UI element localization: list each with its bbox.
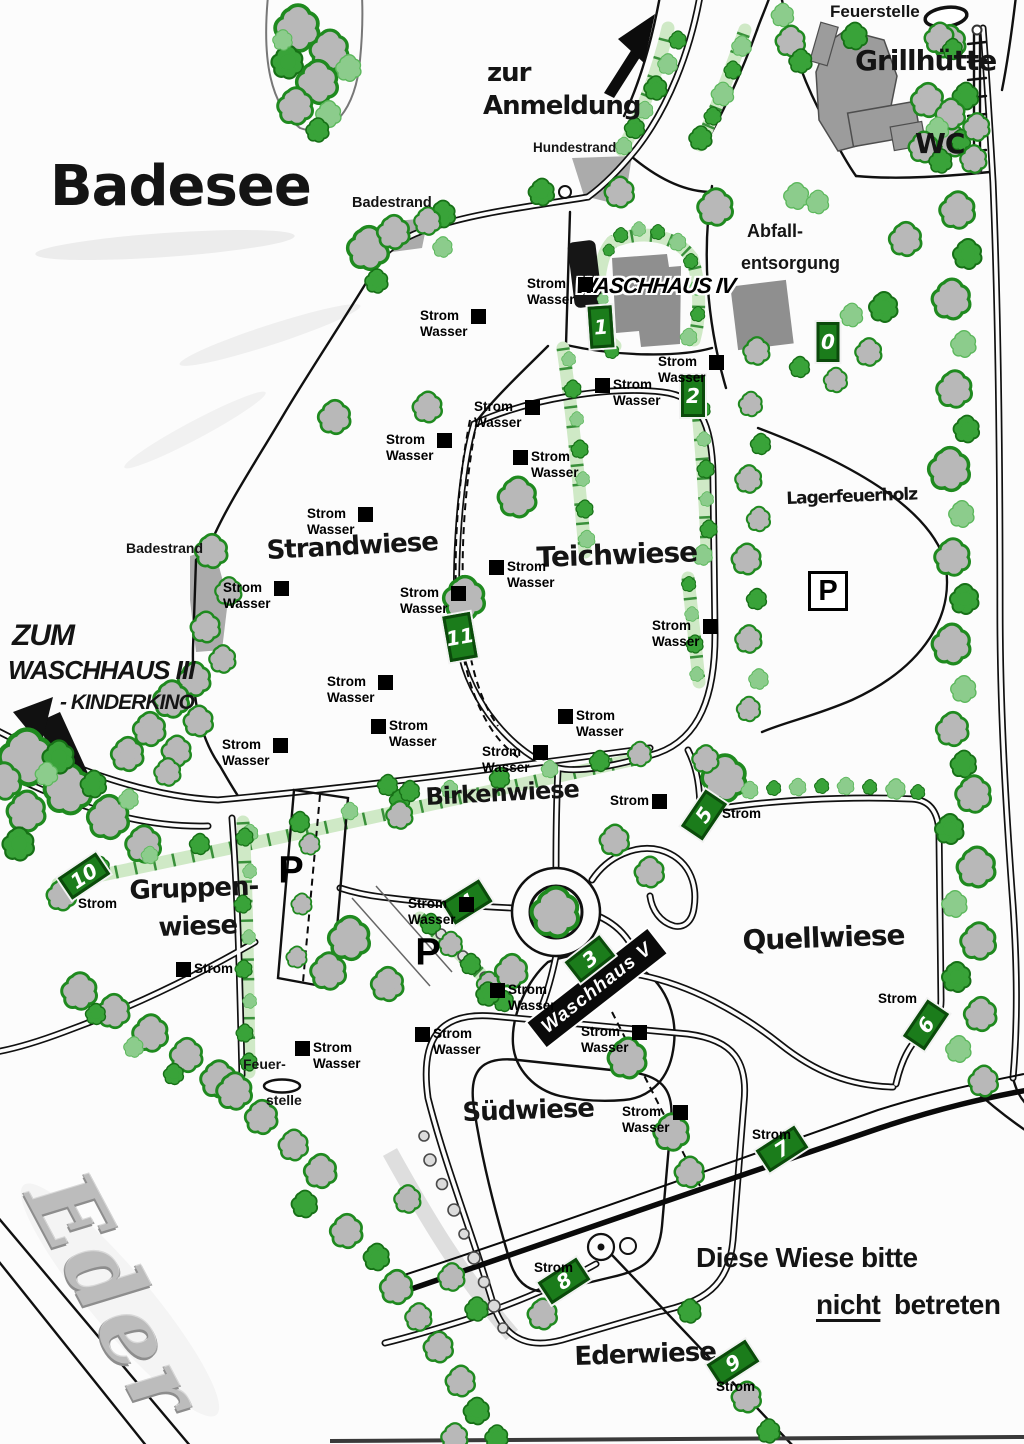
tree-icon [330, 918, 367, 957]
tree-icon [247, 1102, 276, 1133]
tree-icon [733, 1383, 760, 1411]
tree-icon [197, 536, 226, 567]
tree-icon [758, 1420, 779, 1442]
tree-icon [970, 1067, 997, 1095]
tree-icon [237, 1025, 253, 1042]
hundestrand-point [559, 186, 571, 198]
tree-icon [679, 1300, 700, 1322]
tree-icon [767, 781, 780, 795]
tree-icon [241, 1054, 257, 1071]
tree-icon [600, 322, 613, 336]
tree-icon [447, 1367, 474, 1395]
tree-icon [886, 779, 905, 799]
tree-icon [135, 714, 164, 745]
tree-icon [603, 244, 614, 255]
tree-icon [934, 626, 968, 662]
tree-icon [863, 780, 876, 794]
tree-icon [342, 803, 358, 820]
tree-icon [749, 669, 768, 689]
tree-icon [486, 1426, 507, 1444]
tree-icon [124, 1037, 143, 1057]
tree-icon [636, 858, 663, 886]
tree-icon [442, 1424, 466, 1444]
tree-icon [235, 896, 251, 913]
tree-icon [190, 834, 209, 854]
tree-icon [466, 1298, 487, 1320]
tree-icon [601, 826, 628, 854]
tree-icon [959, 849, 993, 885]
tree-icon [572, 441, 588, 458]
tree-icon [670, 32, 686, 49]
tree-icon [856, 339, 880, 364]
tree-icon [414, 393, 441, 421]
building-waschhaus-4 [612, 254, 681, 347]
tree-icon [192, 613, 219, 641]
tree-icon [790, 50, 811, 72]
tree-icon [951, 751, 975, 776]
tree-icon [590, 751, 609, 771]
tree-icon [625, 118, 644, 138]
tree-icon [736, 466, 760, 491]
tree-icon [748, 508, 769, 530]
tree-icon [300, 834, 319, 854]
tree-icon [690, 127, 711, 149]
tree-icon [691, 307, 704, 321]
tree-icon [687, 636, 703, 653]
tree-icon [942, 891, 966, 916]
tree-icon [279, 89, 311, 123]
tree-icon [565, 381, 581, 398]
tree-icon [307, 119, 328, 141]
tree-icon [738, 698, 759, 720]
tree-icon [155, 682, 187, 716]
tree-icon [445, 578, 482, 617]
tree-icon [292, 894, 311, 914]
tree-icon [332, 1216, 361, 1247]
tree-icon [693, 746, 717, 771]
tree-icon [951, 331, 975, 356]
tree-icon [838, 778, 854, 795]
tree-icon [629, 743, 650, 765]
tree-icon [676, 1158, 703, 1186]
tree-icon [616, 138, 632, 155]
tree-icon [694, 401, 710, 418]
tree-icon [218, 1074, 250, 1108]
tree-icon [185, 707, 212, 735]
tree-icon [632, 222, 645, 236]
tree-icon [236, 961, 252, 978]
tree-icon [425, 1333, 452, 1361]
tree-icon [442, 781, 458, 798]
tree-icon [395, 1186, 419, 1211]
tree-icon [379, 217, 408, 248]
tree-icon [772, 4, 793, 26]
tree-icon [366, 270, 387, 292]
tree-icon [4, 829, 33, 860]
tree-icon [951, 676, 975, 701]
tree-icon [936, 815, 963, 843]
tree-icon [698, 461, 714, 478]
tree-icon [645, 77, 666, 99]
tree-icon [164, 1064, 183, 1084]
tree-icon [790, 357, 809, 377]
tree-icon [306, 1156, 335, 1187]
tree-icon [701, 521, 717, 538]
tree-icon [943, 39, 962, 59]
tree-icon [0, 764, 19, 798]
tree-icon [651, 225, 664, 239]
tree-icon [373, 969, 402, 1000]
tree-icon [113, 739, 142, 770]
tree-icon [216, 578, 240, 603]
feuerstelle-oval-bottom [264, 1080, 300, 1093]
tree-icon [421, 914, 440, 934]
tree-icon [378, 775, 397, 795]
tree-icon [891, 224, 920, 255]
tree-icon [740, 393, 761, 415]
tree-icon [48, 881, 75, 909]
tree-icon [655, 1115, 687, 1149]
tree-icon [119, 789, 138, 809]
tree-icon [320, 402, 349, 433]
tree-icon [699, 190, 731, 224]
tree-icon [439, 1264, 463, 1289]
tree-icon [736, 626, 760, 651]
tree-icon [790, 779, 806, 796]
tree-icon [870, 293, 897, 321]
tree-icon [440, 933, 461, 955]
tree-icon [964, 114, 988, 139]
tree-icon [841, 304, 862, 326]
tree-icon [934, 281, 968, 317]
tree-icon [9, 793, 43, 829]
tree-icon [951, 585, 978, 613]
tree-icon [534, 890, 576, 935]
tree-icon [941, 193, 973, 227]
tree-icon [946, 1036, 970, 1061]
tree-icon [290, 812, 309, 832]
tree-icon [930, 150, 951, 172]
tree-icon [86, 1004, 105, 1024]
tree-icon [529, 179, 553, 204]
tree-icon [400, 781, 419, 801]
map-graphics: .ro{fill:none;stroke:#101010;stroke-widt… [0, 0, 1024, 1444]
campsite-map: .ro{fill:none;stroke:#101010;stroke-widt… [0, 0, 1024, 1444]
tree-icon [961, 146, 985, 171]
tree-icon [712, 83, 733, 105]
tree-icon [382, 1272, 411, 1303]
tree-icon [911, 785, 924, 799]
tree-icon [500, 479, 534, 515]
tree-icon [497, 956, 526, 987]
tree-icon [614, 228, 627, 242]
tree-icon [825, 369, 846, 391]
tree-icon [610, 1040, 644, 1076]
tree-icon [210, 646, 234, 671]
tree-icon [90, 857, 109, 877]
tree-icon [464, 1398, 488, 1423]
tree-icon [725, 62, 741, 79]
tree-icon [733, 545, 760, 573]
tree-icon [477, 983, 498, 1005]
tree-icon [807, 191, 828, 213]
tree-icon [415, 208, 439, 233]
tree-icon [954, 416, 978, 441]
tree-icon [312, 954, 344, 988]
tree-icon [815, 779, 828, 793]
tree-icon [957, 777, 989, 811]
tree-icon [943, 963, 970, 991]
tree-icon [292, 1191, 316, 1216]
tree-icon [744, 338, 768, 363]
tree-icon [693, 545, 712, 565]
tree-icon [606, 178, 633, 206]
tree-icon [577, 501, 593, 518]
tree-icon [962, 924, 994, 958]
tree-icon [682, 577, 695, 591]
tree-icon [605, 344, 618, 358]
tree-icon [705, 108, 721, 125]
tree-icon [461, 954, 480, 974]
tree-icon [684, 254, 697, 268]
tree-icon [784, 183, 808, 208]
tree-icon [63, 974, 95, 1008]
tree-icon [966, 999, 995, 1030]
tree-icon [747, 589, 766, 609]
tree-icon [364, 1244, 388, 1269]
tree-icon [433, 237, 452, 257]
tree-icon [842, 23, 866, 48]
tree-icon [387, 802, 411, 827]
tree-icon [938, 714, 967, 745]
tree-icon [237, 829, 253, 846]
tree-icon [681, 329, 697, 346]
tree-icon [930, 449, 967, 488]
tree-icon [280, 1131, 307, 1159]
tree-icon [938, 372, 970, 406]
tree-icon [287, 947, 306, 967]
tree-icon [273, 47, 302, 78]
tree-icon [936, 540, 968, 574]
tree-icon [949, 501, 973, 526]
tree-icon [529, 1300, 556, 1328]
tree-icon [954, 240, 981, 268]
tree-icon [751, 434, 770, 454]
tree-icon [406, 1304, 430, 1329]
tree-icon [81, 771, 105, 796]
tree-icon [490, 768, 509, 788]
tree-icon [155, 759, 179, 784]
